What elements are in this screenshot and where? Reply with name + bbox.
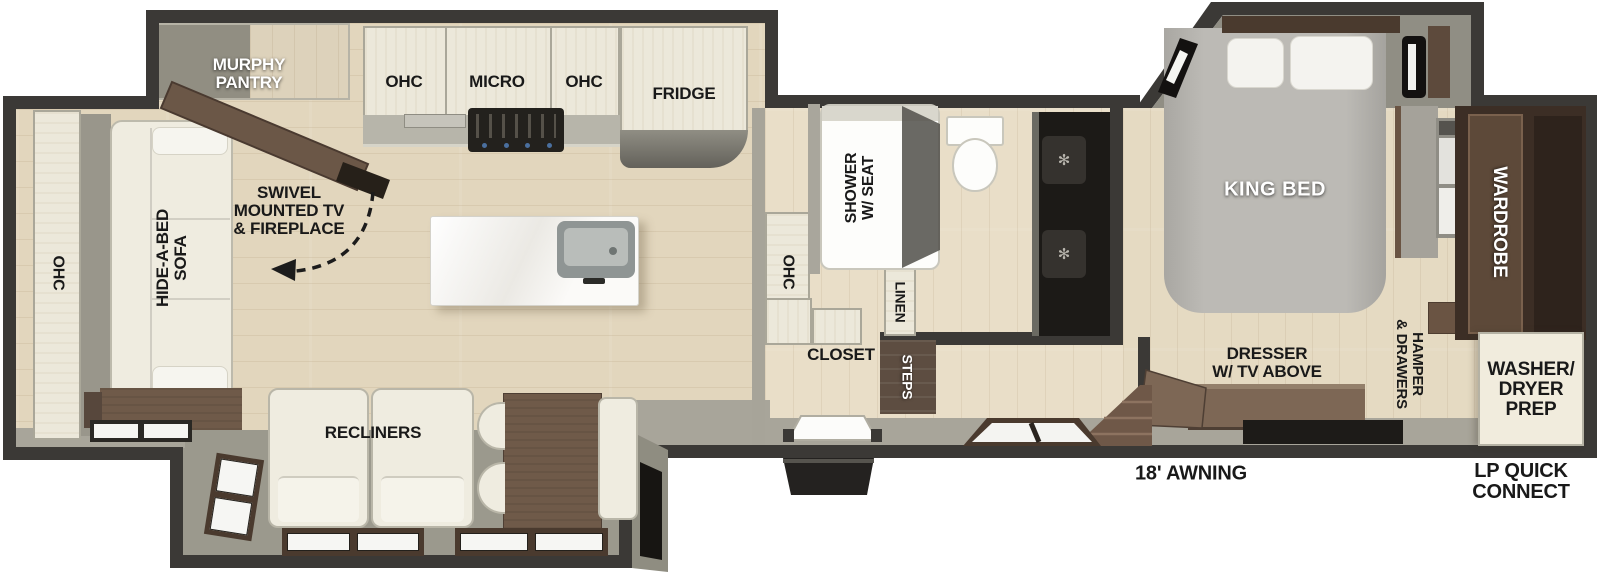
- label-closet: CLOSET: [807, 346, 875, 364]
- window-pane: [460, 533, 528, 551]
- shower-wall-strip: [808, 104, 820, 274]
- label-linen: LINEN: [893, 281, 908, 322]
- wardrobe: [1455, 106, 1586, 340]
- rv-floorplan: ✻ ✻: [0, 0, 1600, 584]
- counter-vent-strip: [404, 114, 466, 128]
- bath-vanity: ✻ ✻: [1032, 112, 1110, 336]
- slideout-window-2: [455, 528, 608, 556]
- label-hide-a-bed-sofa: HIDE-A-BED SOFA: [154, 209, 190, 307]
- tv-mat: [1243, 420, 1403, 444]
- toilet-bowl: [952, 138, 998, 192]
- window-pane: [144, 424, 188, 438]
- knob: [547, 143, 552, 148]
- label-lp-quick-connect: LP QUICK CONNECT: [1472, 461, 1570, 503]
- vanity-sink-1: ✻: [1042, 136, 1086, 184]
- cooktop-knobs: [482, 143, 552, 149]
- label-hamper-drawers: HAMPER & DRAWERS: [1393, 319, 1425, 409]
- label-wardrobe: WARDROBE: [1489, 166, 1509, 277]
- label-micro: MICRO: [469, 73, 525, 91]
- bed-headboard: [1222, 16, 1400, 33]
- shower-pan: [820, 104, 940, 270]
- vanity-sink-2: ✻: [1042, 230, 1086, 278]
- label-dresser-tv: DRESSER W/ TV ABOVE: [1212, 345, 1322, 381]
- bedroom-wall-gray: [1400, 106, 1438, 258]
- label-ohc-rear: OHC: [49, 256, 66, 291]
- window-pane: [535, 533, 603, 551]
- closet-box-2: [812, 308, 862, 345]
- kitchen-island: [430, 216, 639, 306]
- window-pane: [287, 533, 350, 551]
- label-steps: STEPS: [900, 355, 915, 400]
- cabinet-divider: [550, 28, 552, 116]
- bed-pillow-right: [1290, 36, 1373, 90]
- label-shower: SHOWER W/ SEAT: [844, 153, 878, 224]
- label-swivel-tv: SWIVEL MOUNTED TV & FIREPLACE: [233, 184, 344, 238]
- label-recliners: RECLINERS: [325, 424, 421, 442]
- shower-head-wall: [822, 106, 938, 121]
- dinette-bench: [598, 397, 638, 520]
- vanity-edge: [1032, 112, 1039, 336]
- cooktop: [468, 108, 564, 152]
- sofa-back-seam: [150, 128, 152, 392]
- sink-drain: [609, 247, 617, 255]
- cabinet-divider: [445, 28, 447, 116]
- fridge-cabinet: [620, 26, 748, 132]
- sofa-arm-top: [152, 127, 228, 155]
- window-pane: [94, 424, 138, 438]
- cooktop-grate: [476, 114, 556, 138]
- label-fridge: FRIDGE: [652, 85, 715, 103]
- recliner-left: [268, 388, 369, 528]
- bed-pillow-left: [1227, 38, 1284, 88]
- walkway-gray-bottom: [765, 418, 1584, 445]
- recliner-right: [371, 388, 474, 528]
- sink-basin: [564, 228, 628, 266]
- window-pane: [210, 497, 253, 536]
- walkway-gray-door: [619, 400, 770, 445]
- label-ohc-kitchen-right: OHC: [565, 73, 602, 91]
- label-ohc-kitchen-left: OHC: [385, 73, 422, 91]
- window-pane: [216, 458, 259, 497]
- label-awning: 18' AWNING: [1135, 464, 1247, 485]
- wardrobe-interior: [1534, 116, 1582, 334]
- window-pane: [357, 533, 420, 551]
- knob: [482, 143, 487, 148]
- fridge-base: [620, 130, 748, 168]
- recliner-seat: [381, 476, 464, 522]
- label-king-bed: KING BED: [1224, 180, 1326, 201]
- closet-box-1: [765, 298, 812, 345]
- bedroom-wall-edge: [1395, 106, 1401, 258]
- slideout-window-1: [282, 528, 424, 556]
- label-ohc-mid: OHC: [779, 255, 796, 290]
- mid-partition-wall: [752, 108, 765, 445]
- living-slideout-right-shadow: [640, 462, 662, 560]
- knob: [525, 143, 530, 148]
- label-murphy-pantry: MURPHY PANTRY: [213, 56, 285, 92]
- knob: [504, 143, 509, 148]
- rear-floor-window: [90, 420, 192, 442]
- island-sink: [557, 221, 635, 278]
- label-washer-dryer-prep: WASHER/ DRYER PREP: [1487, 360, 1574, 420]
- sink-faucet: [583, 278, 605, 284]
- recliner-seat: [278, 476, 359, 522]
- dinette-table: [503, 393, 602, 530]
